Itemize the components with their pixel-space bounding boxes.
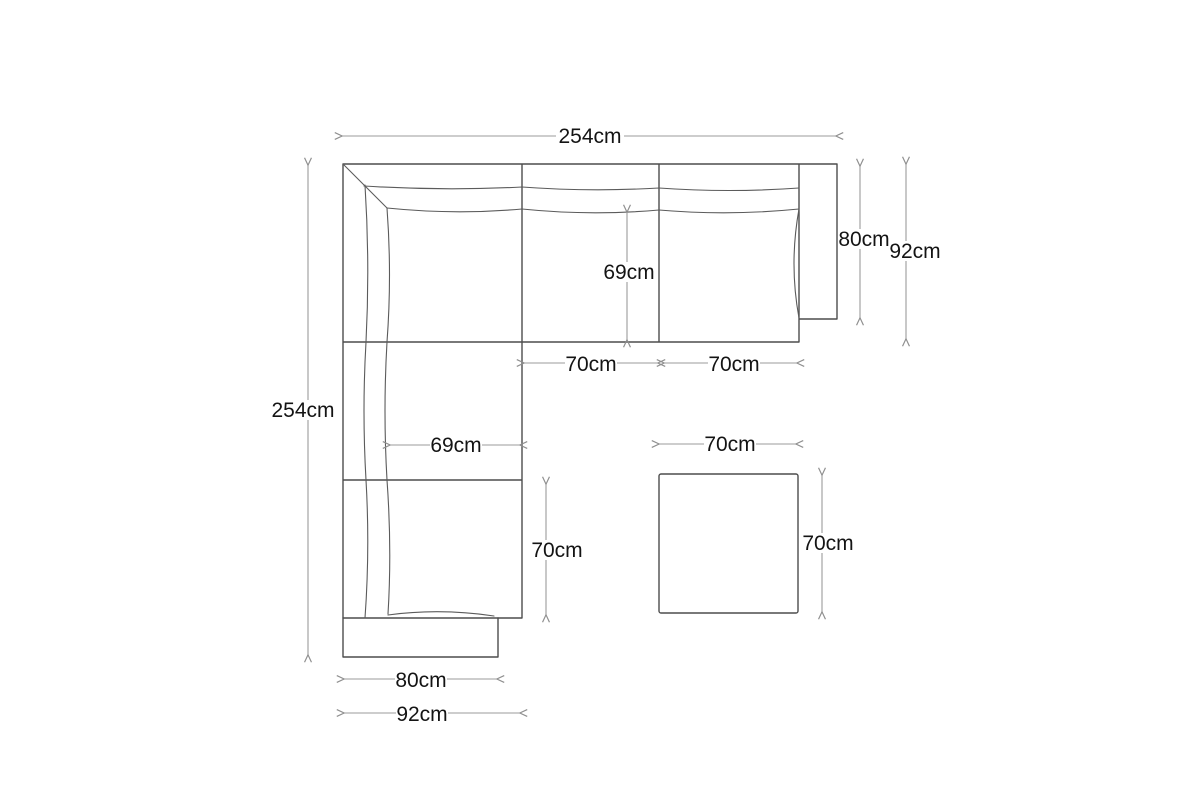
- dim-label-bottom-overall-width: 92cm: [396, 703, 447, 726]
- dim-label-middle-seat-width: 70cm: [565, 353, 616, 376]
- back-seam-horizontal: [364, 186, 799, 191]
- ottoman-rect: [659, 474, 798, 613]
- dim-label-right-arm-depth: 80cm: [838, 228, 889, 251]
- arm-cushion-arc: [794, 209, 799, 318]
- dim-label-top-total-width: 254cm: [558, 125, 621, 148]
- seat-front-arc: [388, 612, 494, 616]
- dimension-label-masks: [269, 126, 941, 723]
- cushion-seam-horizontal: [387, 208, 799, 213]
- dim-label-chaise-seat-length: 70cm: [531, 539, 582, 562]
- dim-label-ottoman-width: 70cm: [704, 433, 755, 456]
- dim-label-bottom-arm-width: 80cm: [395, 669, 446, 692]
- dim-label-right-overall-depth: 92cm: [889, 240, 940, 263]
- dimension-diagram-canvas: 254cm 254cm 80cm 92cm 69cm 70cm 70cm 69c…: [0, 0, 1200, 800]
- dim-label-ottoman-depth: 70cm: [802, 532, 853, 555]
- sofa-outline: [343, 164, 837, 657]
- cushion-seam-vertical: [385, 208, 390, 614]
- dim-label-chaise-seat-width: 69cm: [430, 434, 481, 457]
- ottoman-outline: [659, 474, 798, 613]
- dimension-labels: 254cm 254cm 80cm 92cm 69cm 70cm 70cm 69c…: [271, 125, 940, 726]
- dim-label-left-total-depth: 254cm: [271, 399, 334, 422]
- dim-label-middle-seat-depth: 69cm: [603, 261, 654, 284]
- back-seam-vertical: [364, 185, 368, 618]
- sofa-body-outline: [343, 164, 837, 618]
- dimension-lines: [308, 136, 906, 713]
- dim-label-right-seat-width: 70cm: [708, 353, 759, 376]
- sofa-footer-outline: [343, 618, 498, 657]
- sofa-dimension-diagram: 254cm 254cm 80cm 92cm 69cm 70cm 70cm 69c…: [0, 0, 1200, 800]
